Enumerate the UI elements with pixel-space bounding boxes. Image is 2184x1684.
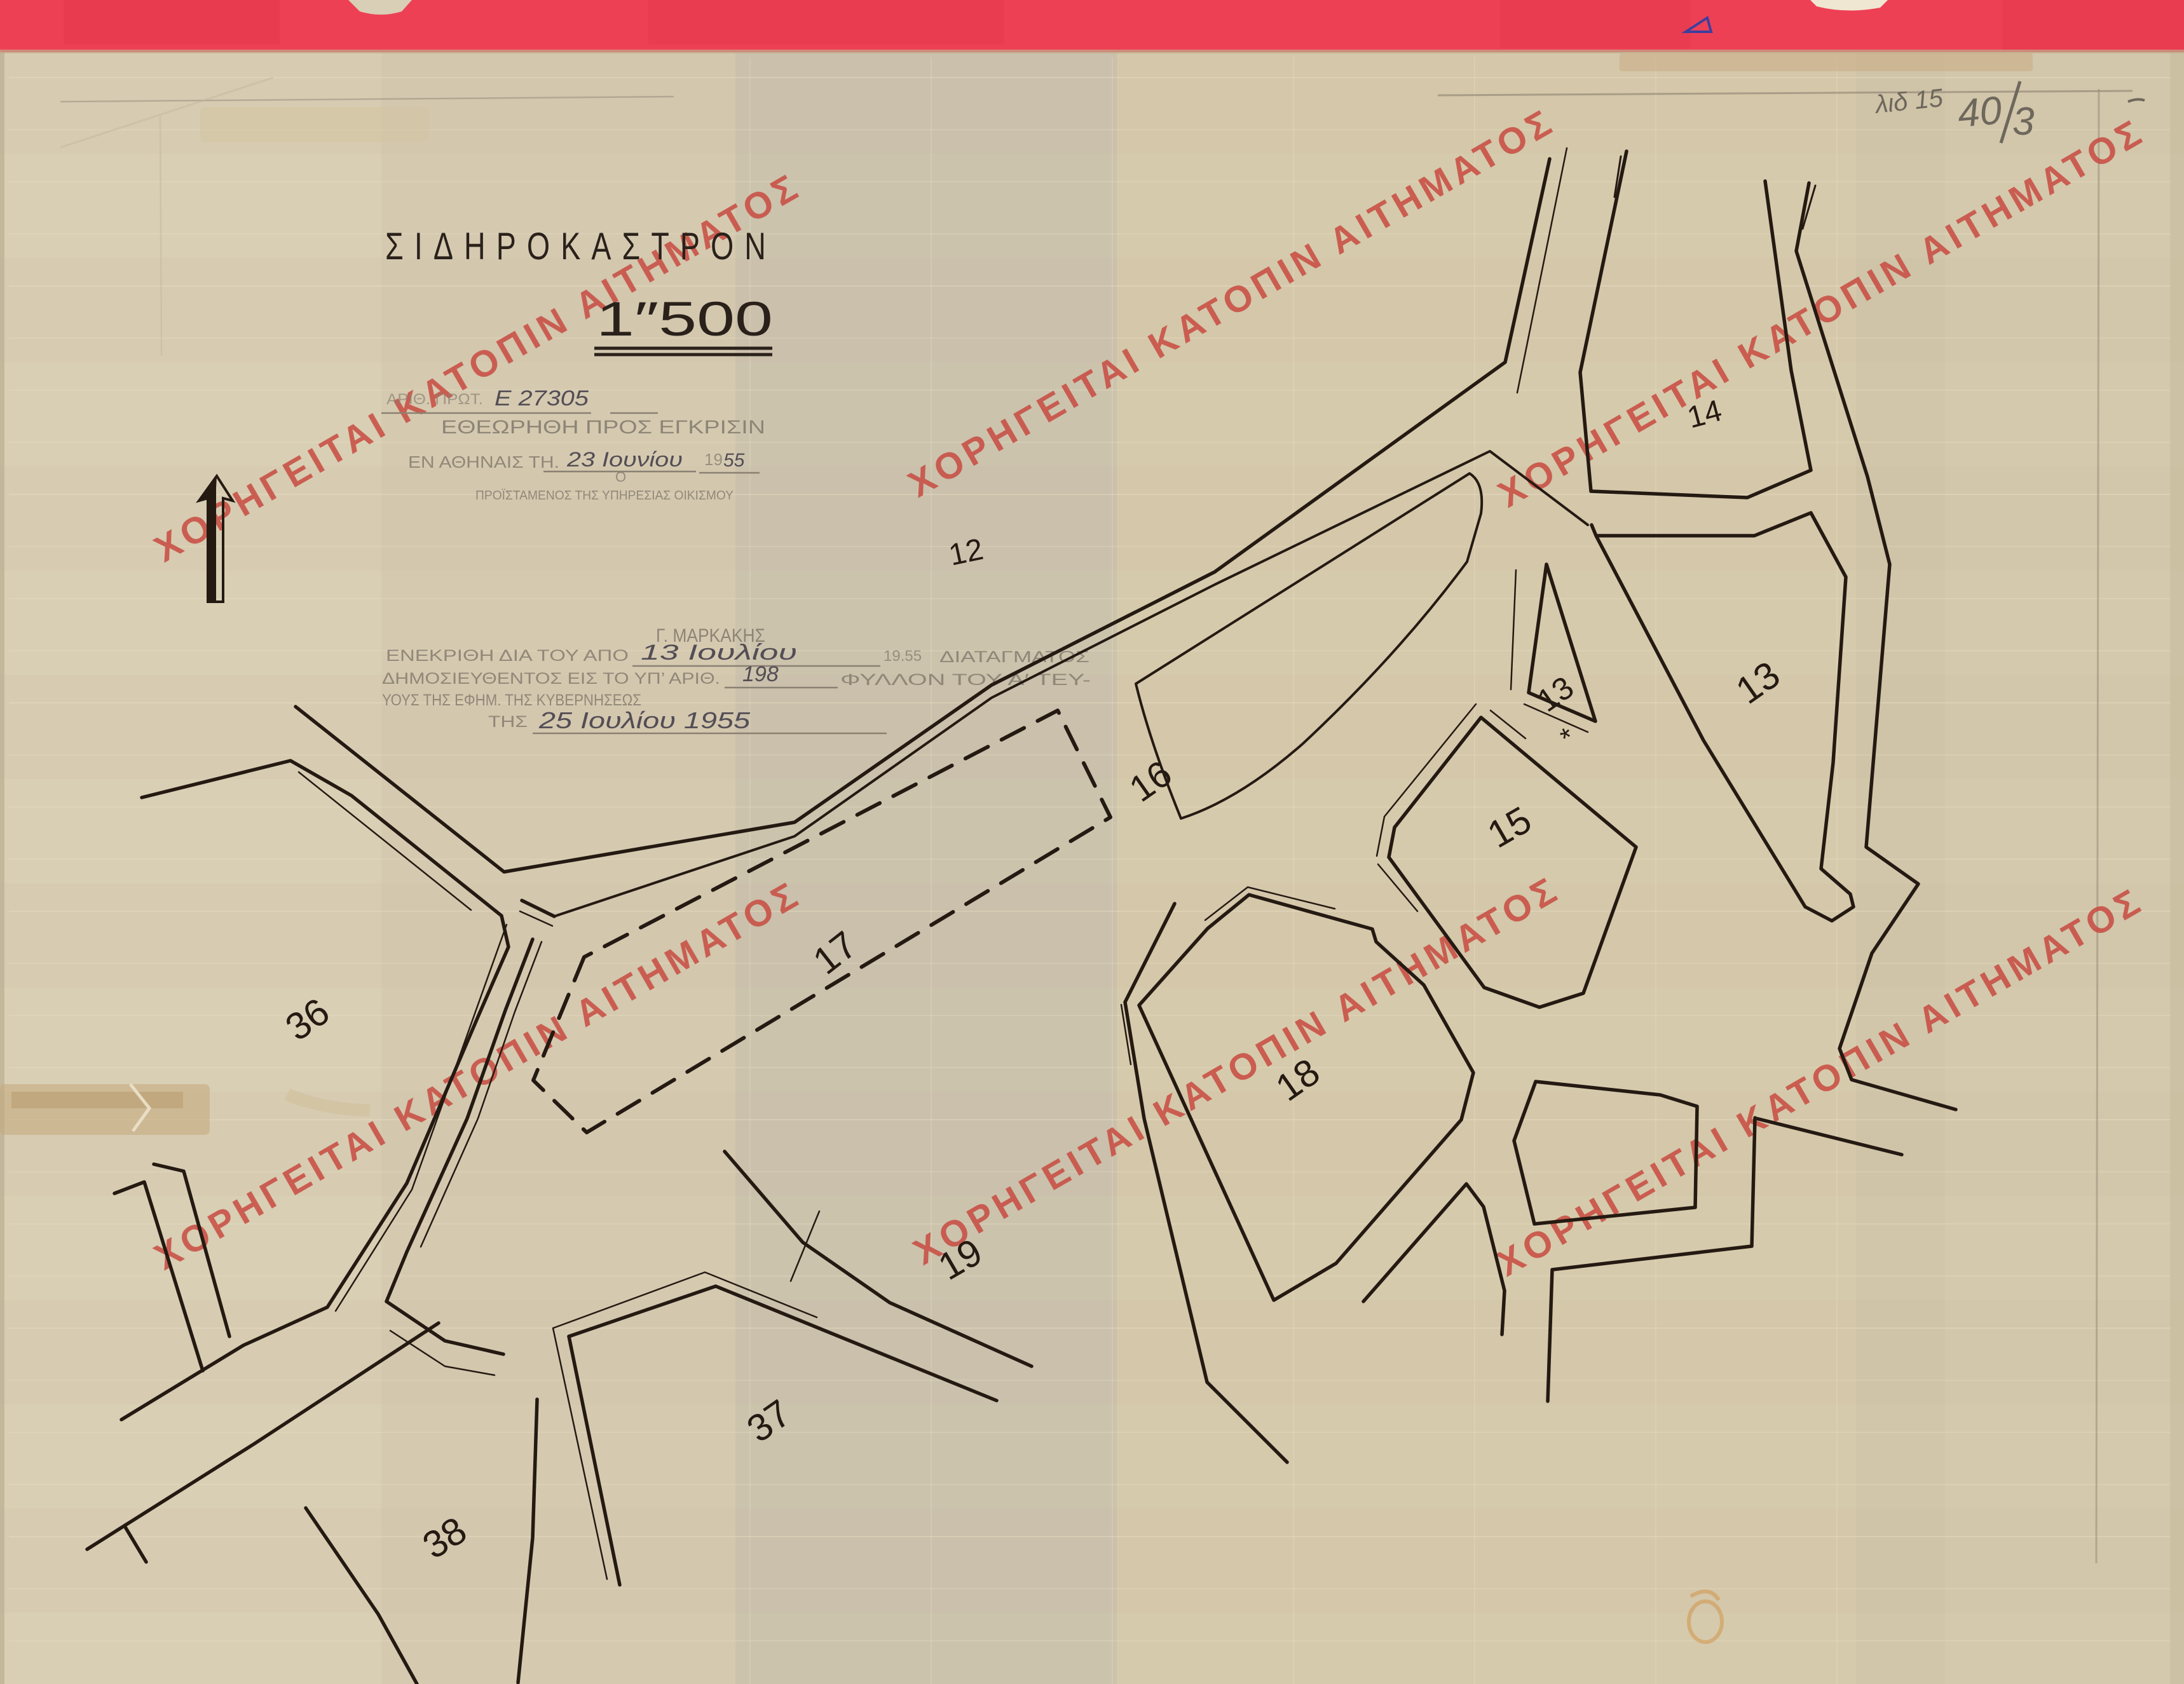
svg-text:3: 3 [2012, 100, 2034, 144]
svg-text:ΕΝΕΚΡΙΘΗ ΔΙΑ ΤΟΥ ΑΠΟ: ΕΝΕΚΡΙΘΗ ΔΙΑ ΤΟΥ ΑΠΟ [386, 647, 629, 665]
svg-text:ΔΗΜΟΣΙΕΥΘΕΝΤΟΣ ΕΙΣ ΤΟ ΥΠ’ ΑΡΙΘ: ΔΗΜΟΣΙΕΥΘΕΝΤΟΣ ΕΙΣ ΤΟ ΥΠ’ ΑΡΙΘ. [382, 670, 720, 688]
svg-text:ΥΟΥΣ ΤΗΣ ΕΦΗΜ. ΤΗΣ ΚΥΒΕΡΝΗΣΕΩΣ: ΥΟΥΣ ΤΗΣ ΕΦΗΜ. ΤΗΣ ΚΥΒΕΡΝΗΣΕΩΣ [382, 691, 641, 709]
svg-text:ΤΗΣ: ΤΗΣ [488, 713, 528, 731]
svg-text:ΑΡΙΘ. ΠΡΩΤ.: ΑΡΙΘ. ΠΡΩΤ. [386, 391, 483, 408]
svg-text:1″500: 1″500 [596, 292, 773, 346]
svg-text:ΣΙΔΗΡΟΚΑΣΤΡΟΝ: ΣΙΔΗΡΟΚΑΣΤΡΟΝ [385, 225, 777, 268]
svg-text:Ο: Ο [615, 469, 626, 485]
svg-text:25 Ιουλίου 1955: 25 Ιουλίου 1955 [538, 707, 751, 733]
svg-text:13 Ιουλίου: 13 Ιουλίου [641, 641, 797, 665]
svg-text:Ε 27305: Ε 27305 [495, 386, 589, 411]
svg-text:198: 198 [742, 662, 779, 686]
svg-text:55: 55 [723, 450, 745, 471]
svg-text:40: 40 [1956, 88, 2003, 136]
svg-text:ΕΝ ΑΘΗΝΑΙΣ ΤΗ.: ΕΝ ΑΘΗΝΑΙΣ ΤΗ. [408, 452, 559, 472]
svg-text:ΦΥΛΛΟΝ ΤΟΥ Α′ ΤΕΥ-: ΦΥΛΛΟΝ ΤΟΥ Α′ ΤΕΥ- [840, 671, 1091, 689]
svg-text:ΠΡΟΪΣΤΑΜΕΝΟΣ ΤΗΣ ΥΠΗΡΕΣΙΑΣ ΟΙΚ: ΠΡΟΪΣΤΑΜΕΝΟΣ ΤΗΣ ΥΠΗΡΕΣΙΑΣ ΟΙΚΙΣΜΟΥ [475, 489, 734, 503]
svg-text:12: 12 [946, 533, 986, 573]
svg-text:ΕΘΕΩΡΗΘΗ ΠΡΟΣ ΕΓΚΡΙΣΙΝ: ΕΘΕΩΡΗΘΗ ΠΡΟΣ ΕΓΚΡΙΣΙΝ [441, 417, 765, 438]
svg-text:23 Ιουνίου: 23 Ιουνίου [566, 448, 683, 471]
svg-text:ΔΙΑΤΑΓΜΑΤΟΣ: ΔΙΑΤΑΓΜΑΤΟΣ [939, 648, 1089, 666]
svg-text:19: 19 [704, 450, 723, 469]
svg-text:19.55: 19.55 [884, 648, 922, 665]
